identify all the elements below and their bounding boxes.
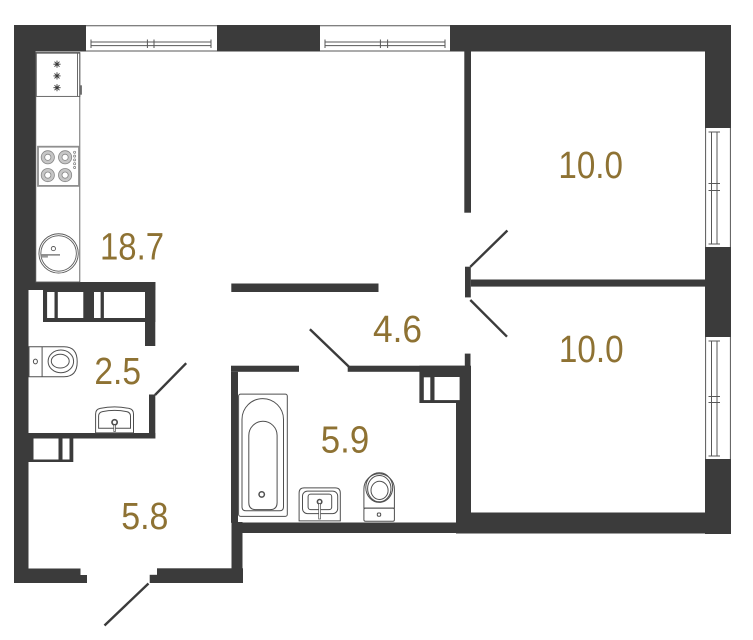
svg-text:18.7: 18.7 bbox=[100, 227, 164, 269]
svg-text:4.6: 4.6 bbox=[373, 309, 422, 351]
svg-text:5.8: 5.8 bbox=[121, 496, 168, 538]
svg-text:10.0: 10.0 bbox=[558, 145, 623, 187]
svg-text:2.5: 2.5 bbox=[94, 351, 141, 393]
svg-text:5.9: 5.9 bbox=[321, 420, 369, 462]
svg-text:10.0: 10.0 bbox=[559, 329, 624, 371]
